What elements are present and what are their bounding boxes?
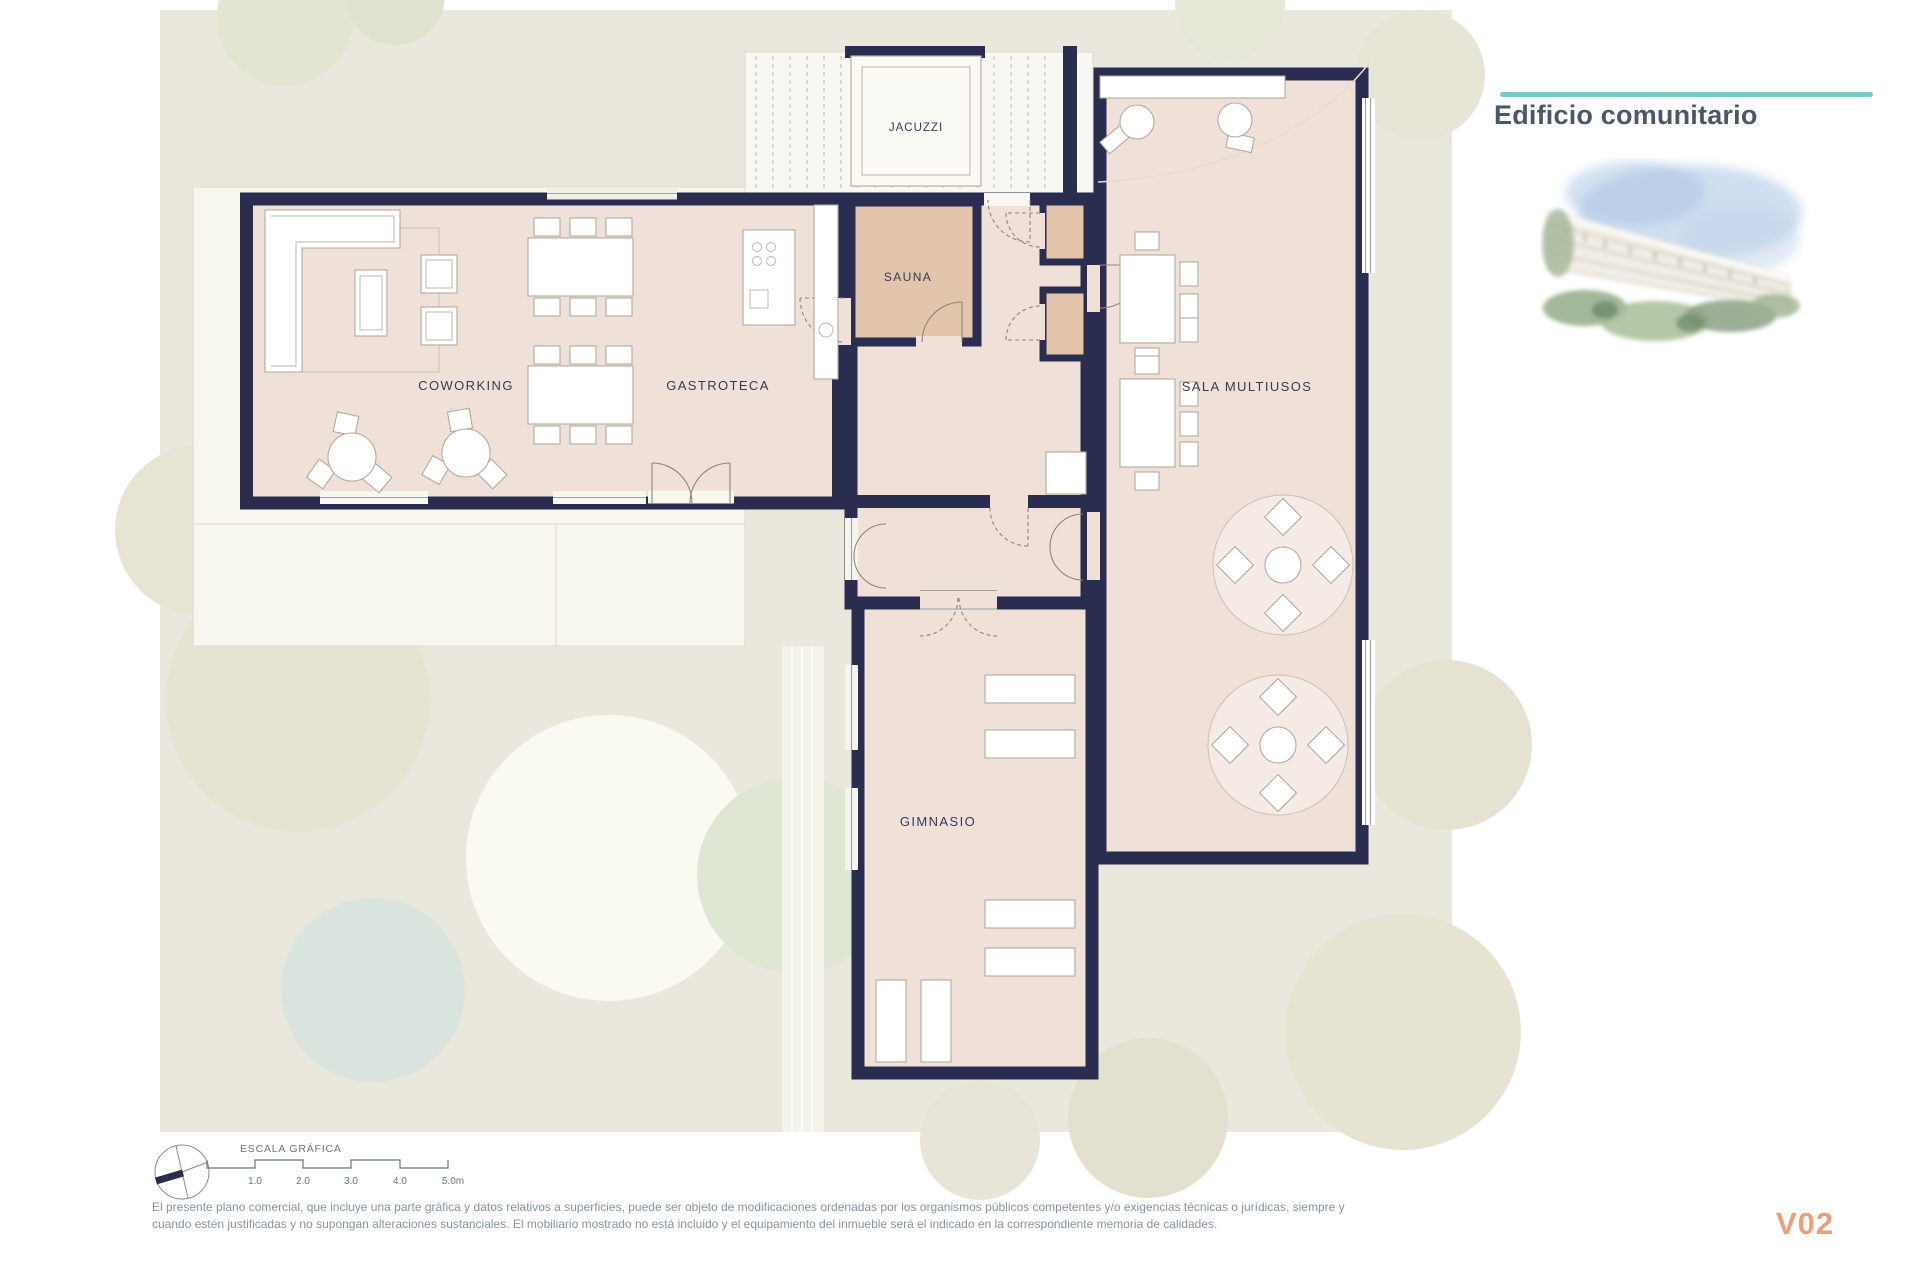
disclaimer-line-2: cuando estén justificadas y no supongan … xyxy=(152,1216,1612,1233)
teal-divider xyxy=(1500,92,1873,97)
room-wc-1 xyxy=(1043,202,1087,262)
room-label-gastroteca: GASTROTECA xyxy=(666,378,770,393)
disclaimer-line-1: El presente plano comercial, que incluye… xyxy=(152,1199,1612,1216)
round-table-group xyxy=(1213,495,1353,635)
room-label-gimnasio: GIMNASIO xyxy=(900,814,976,829)
corridor-cabinet xyxy=(1046,452,1086,494)
scale-tick-label: 4.0 xyxy=(393,1176,407,1187)
dining-table-6 xyxy=(528,346,633,444)
legal-disclaimer: El presente plano comercial, que incluye… xyxy=(152,1199,1612,1233)
page: JACUZZI SAUNA COWORKING GASTROTECA SALA … xyxy=(0,0,1920,1280)
kitchen-counter xyxy=(814,205,838,379)
building-watercolor-illustration xyxy=(1540,158,1810,358)
room-label-jacuzzi: JACUZZI xyxy=(889,122,943,134)
sala-top-counter xyxy=(1100,76,1285,98)
room-label-sauna: SAUNA xyxy=(884,270,932,284)
jacuzzi-tub xyxy=(851,56,981,186)
scale-bar-title: ESCALA GRÁFICA xyxy=(240,1142,342,1155)
scale-tick-label: 2.0 xyxy=(296,1176,310,1187)
version-label: V02 xyxy=(1776,1206,1834,1242)
kitchen-island xyxy=(743,230,795,325)
scale-tick-label: 1.0 xyxy=(248,1176,262,1187)
room-label-sala-multiusos: SALA MULTIUSOS xyxy=(1182,379,1313,394)
north-compass-icon xyxy=(155,1145,209,1199)
dining-table-6 xyxy=(528,218,633,316)
room-label-coworking: COWORKING xyxy=(418,378,514,393)
scale-tick-label: 5.0m xyxy=(442,1176,464,1187)
page-title: Edificio comunitario xyxy=(1494,100,1758,131)
room-wc-2 xyxy=(1043,290,1087,358)
scale-bar: ESCALA GRÁFICA 1.0 2.0 3.0 4.0 5.0m xyxy=(207,1142,464,1187)
scale-tick-label: 3.0 xyxy=(344,1176,358,1187)
round-table-group xyxy=(1208,675,1348,815)
